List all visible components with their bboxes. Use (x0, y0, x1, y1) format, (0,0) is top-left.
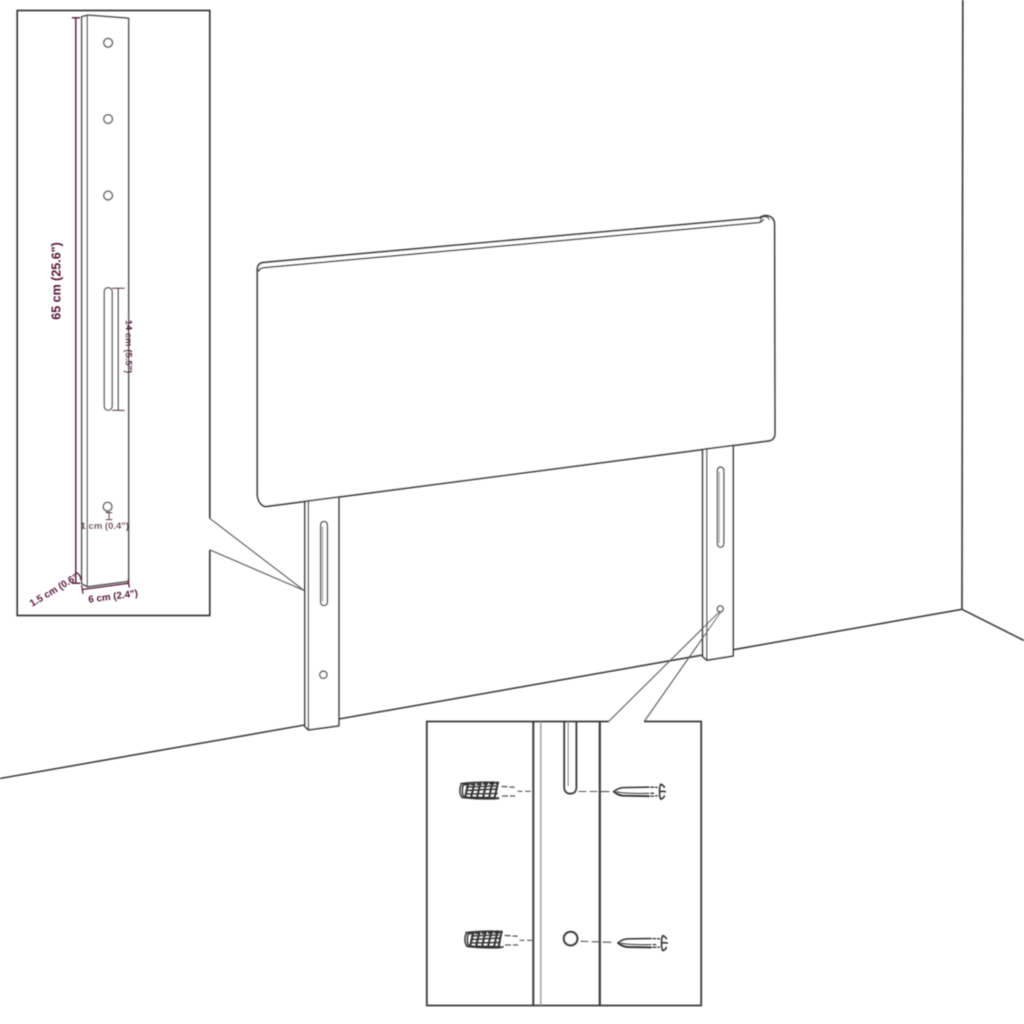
svg-text:14 cm (5.5"): 14 cm (5.5") (123, 320, 134, 374)
svg-text:6 cm (2.4"): 6 cm (2.4") (88, 588, 139, 605)
svg-text:1 cm (0.4"): 1 cm (0.4") (81, 521, 129, 532)
svg-text:1.5 cm (0.6"): 1.5 cm (0.6") (28, 570, 83, 609)
svg-text:65 cm (25.6"): 65 cm (25.6") (50, 242, 64, 320)
